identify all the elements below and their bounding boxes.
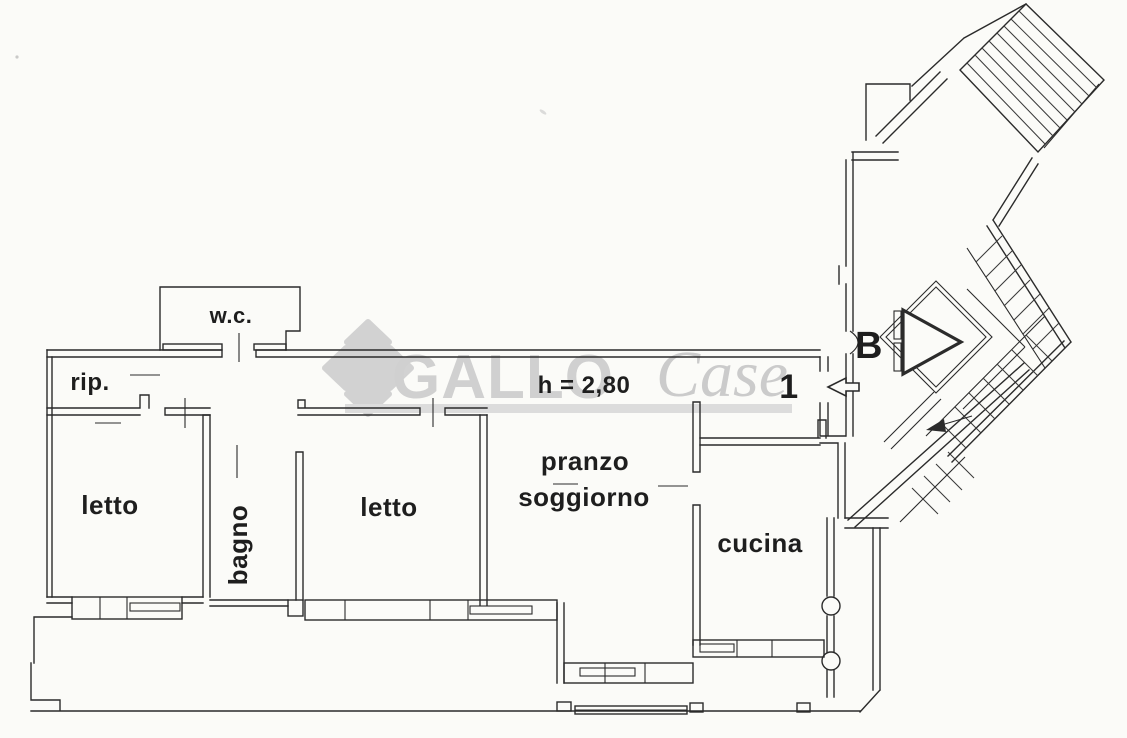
floor-plan-drawing: GALLO Case — [0, 0, 1127, 738]
room-label-pranzo: pranzo — [541, 446, 629, 476]
stair-block-label: B — [855, 325, 883, 367]
room-label-soggiorno: soggiorno — [518, 482, 650, 512]
room-label-bagno: bagno — [223, 505, 253, 586]
floor-plan-page: GALLO Case — [0, 0, 1127, 738]
room-label-wc: w.c. — [209, 303, 253, 328]
room-label-cucina: cucina — [717, 528, 802, 558]
room-label-rip: rip. — [70, 369, 109, 396]
watermark-brand-script: Case — [656, 338, 788, 411]
unit-number-label: 1 — [779, 368, 798, 406]
room-label-letto-left: letto — [81, 490, 138, 520]
ceiling-height-note: h = 2,80 — [538, 372, 631, 399]
room-label-letto-mid: letto — [360, 492, 417, 522]
